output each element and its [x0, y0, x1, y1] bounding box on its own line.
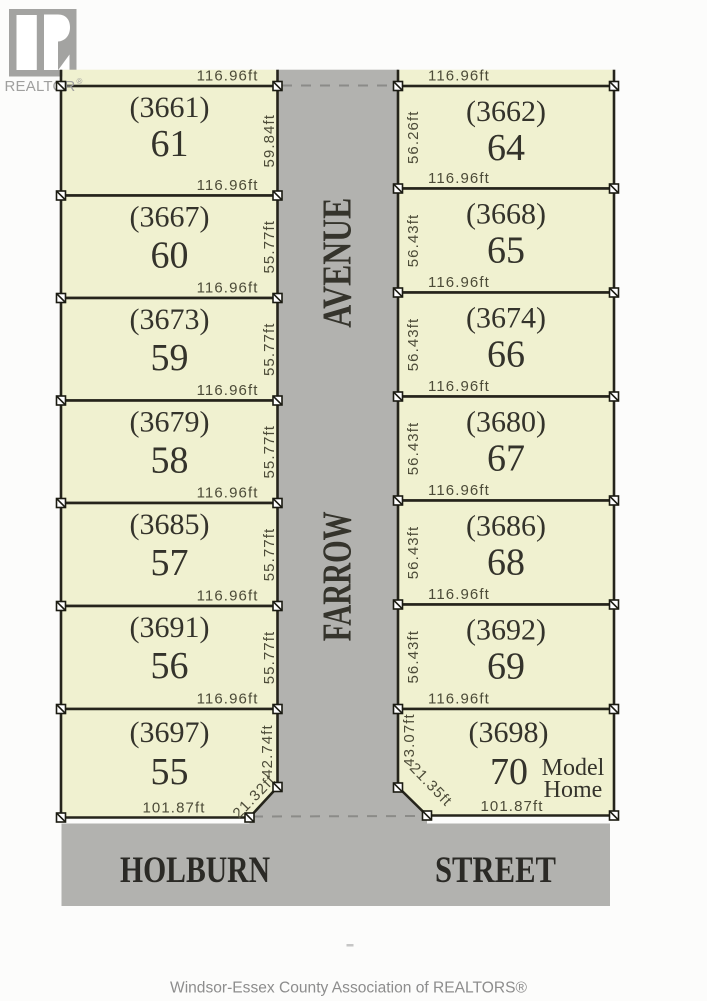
svg-text:42.74ft: 42.74ft — [259, 724, 276, 778]
svg-text:55.77ft: 55.77ft — [261, 322, 278, 376]
svg-text:(3691): (3691) — [130, 611, 210, 644]
svg-text:(3661): (3661) — [130, 91, 210, 124]
svg-text:66: 66 — [487, 334, 525, 376]
svg-text:60: 60 — [151, 235, 189, 277]
svg-text:116.96ft: 116.96ft — [428, 586, 490, 603]
svg-text:(3697): (3697) — [130, 716, 210, 749]
svg-text:116.96ft: 116.96ft — [428, 378, 490, 395]
svg-text:116.96ft: 116.96ft — [197, 280, 259, 297]
svg-text:116.96ft: 116.96ft — [197, 177, 259, 194]
svg-text:55: 55 — [151, 751, 189, 793]
svg-text:70: 70 — [490, 751, 528, 793]
svg-text:FARROW: FARROW — [314, 511, 360, 641]
svg-text:56.43ft: 56.43ft — [405, 214, 422, 268]
svg-text:Home: Home — [544, 777, 603, 803]
svg-text:55.77ft: 55.77ft — [261, 631, 278, 685]
svg-text:56: 56 — [151, 645, 189, 687]
svg-text:101.87ft: 101.87ft — [142, 800, 205, 817]
svg-text:56.43ft: 56.43ft — [405, 526, 422, 580]
svg-text:56.26ft: 56.26ft — [405, 110, 422, 164]
svg-text:65: 65 — [487, 230, 525, 272]
svg-text:AVENUE: AVENUE — [314, 198, 360, 328]
svg-text:(3668): (3668) — [466, 198, 546, 231]
svg-text:116.96ft: 116.96ft — [197, 382, 259, 399]
svg-text:116.96ft: 116.96ft — [428, 274, 490, 291]
svg-text:116.96ft: 116.96ft — [197, 588, 259, 605]
svg-text:116.96ft: 116.96ft — [197, 68, 259, 85]
svg-text:61: 61 — [151, 123, 189, 165]
svg-text:(3686): (3686) — [466, 510, 546, 543]
svg-text:59: 59 — [151, 337, 189, 379]
svg-text:56.43ft: 56.43ft — [405, 630, 422, 684]
svg-text:(3680): (3680) — [466, 406, 546, 439]
svg-text:56.43ft: 56.43ft — [405, 318, 422, 372]
svg-text:58: 58 — [151, 440, 189, 482]
svg-text:Windsor-Essex County Associati: Windsor-Essex County Association of REAL… — [170, 980, 528, 997]
svg-text:(3673): (3673) — [130, 303, 210, 336]
svg-text:(3692): (3692) — [466, 614, 546, 647]
svg-text:101.87ft: 101.87ft — [480, 798, 543, 815]
svg-text:(3685): (3685) — [130, 508, 210, 541]
svg-text:116.96ft: 116.96ft — [428, 170, 490, 187]
svg-text:56.43ft: 56.43ft — [405, 422, 422, 476]
svg-text:®: ® — [77, 77, 83, 86]
svg-text:64: 64 — [487, 127, 525, 169]
svg-text:(3698): (3698) — [469, 716, 549, 749]
svg-text:67: 67 — [487, 438, 525, 480]
svg-text:68: 68 — [487, 542, 525, 584]
svg-text:116.96ft: 116.96ft — [428, 691, 490, 708]
svg-text:(3667): (3667) — [130, 201, 210, 234]
svg-text:116.96ft: 116.96ft — [197, 691, 259, 708]
svg-text:116.96ft: 116.96ft — [197, 485, 259, 502]
svg-text:43.07ft: 43.07ft — [401, 713, 418, 767]
svg-text:(3674): (3674) — [466, 302, 546, 335]
svg-text:55.77ft: 55.77ft — [261, 425, 278, 479]
svg-text:55.77ft: 55.77ft — [261, 220, 278, 274]
svg-text:(3662): (3662) — [466, 95, 546, 128]
svg-text:STREET: STREET — [435, 850, 556, 891]
svg-text:116.96ft: 116.96ft — [428, 68, 490, 85]
svg-text:69: 69 — [487, 646, 525, 688]
svg-text:116.96ft: 116.96ft — [428, 482, 490, 499]
svg-text:HOLBURN: HOLBURN — [120, 850, 270, 891]
svg-text:57: 57 — [151, 542, 189, 584]
svg-text:59.84ft: 59.84ft — [261, 114, 278, 168]
svg-text:(3679): (3679) — [130, 406, 210, 439]
svg-text:55.77ft: 55.77ft — [261, 528, 278, 582]
